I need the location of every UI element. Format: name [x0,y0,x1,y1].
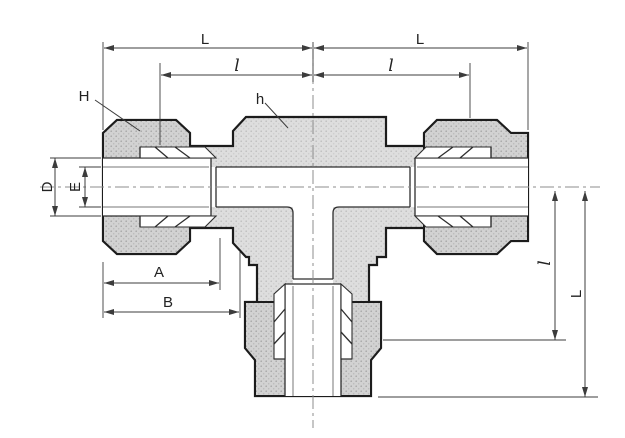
right-ferrule-cavity-top [415,147,491,158]
label-l-top-left: l [234,56,239,76]
label-B: B [163,294,173,311]
label-L-top-right: L [416,31,424,48]
bore-and-tubes [103,158,528,396]
right-ferrule-cavity-bottom [415,216,491,227]
label-E: E [67,182,84,192]
label-h: h [256,91,264,108]
label-l-right-vertical: l [535,260,555,265]
branch-ferrule-cavity-right [341,284,352,359]
drawing-canvas: L L l l H h D E A B l L [0,0,625,438]
label-H: H [79,88,90,105]
label-l-top-right: l [388,56,393,76]
tee-fitting-drawing: L L l l H h D E A B l L [0,0,625,438]
branch-ferrule-cavity-left [274,284,285,359]
label-D: D [39,181,56,192]
label-L-right-vertical: L [568,290,585,298]
label-A: A [154,264,164,281]
label-L-top-left: L [201,31,209,48]
